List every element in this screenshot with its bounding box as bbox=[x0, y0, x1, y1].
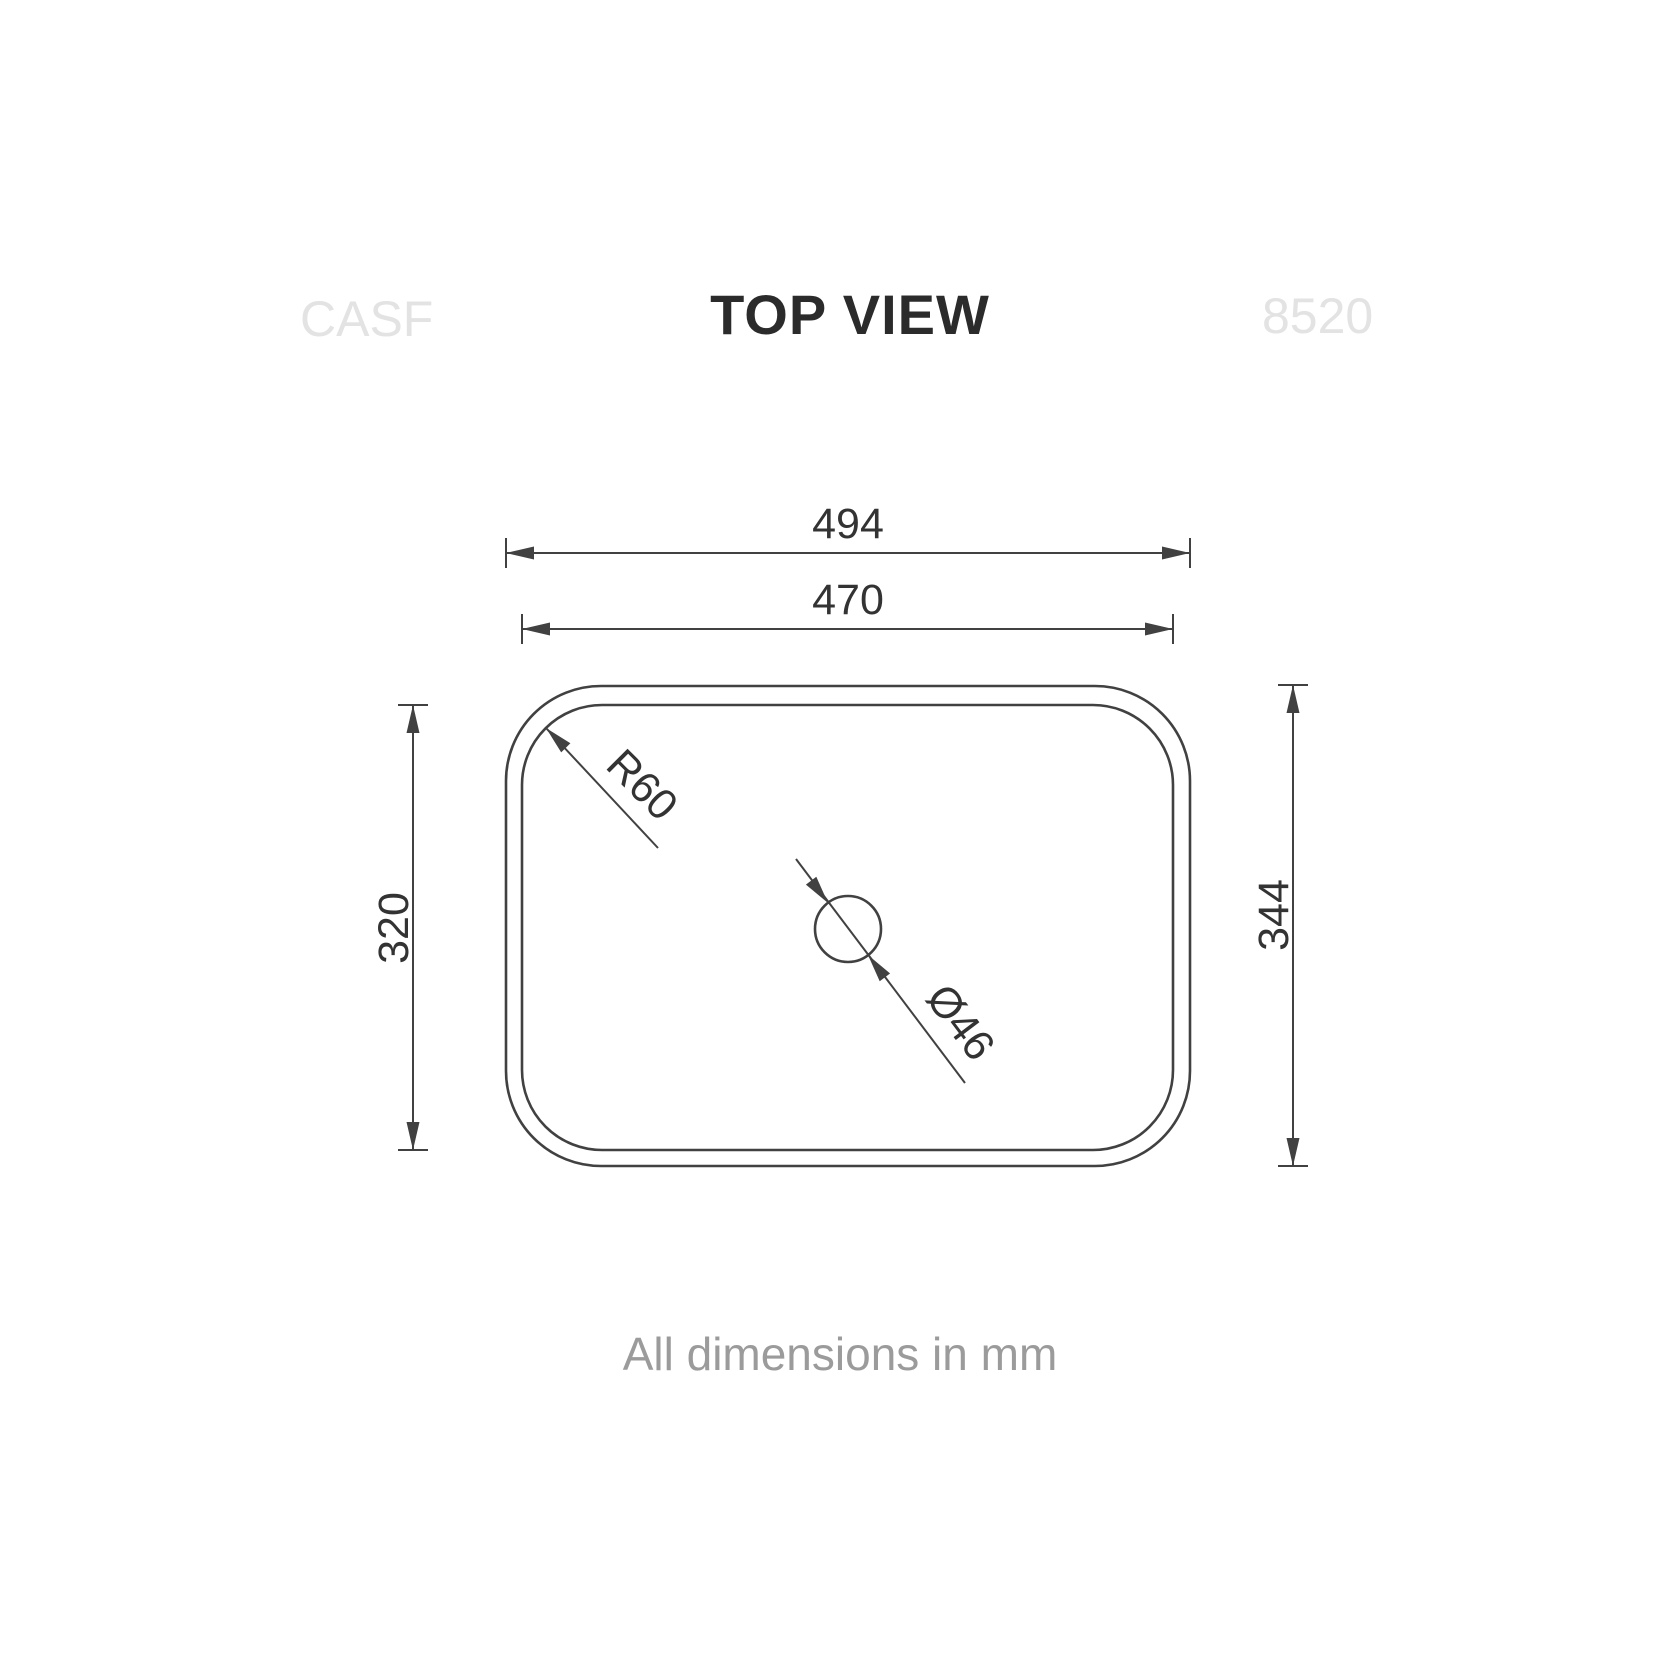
dim-arrow-left bbox=[522, 623, 550, 636]
dim-arrow-bottom bbox=[407, 1122, 420, 1150]
leader-arrow bbox=[546, 728, 570, 752]
top-view-technical-drawing: CASF TOP VIEW 8520 494 470 bbox=[0, 0, 1676, 1676]
leader-arrow-upper bbox=[806, 877, 828, 903]
dim-arrow-top bbox=[1287, 685, 1300, 713]
dim-inner-width: 470 bbox=[522, 576, 1173, 644]
dim-arrow-right bbox=[1162, 547, 1190, 560]
dim-arrow-top bbox=[407, 705, 420, 733]
drain-diameter-label: Ø46 bbox=[917, 976, 1004, 1070]
dim-outer-width: 494 bbox=[506, 500, 1190, 568]
callout-corner-radius: R60 bbox=[546, 728, 687, 848]
dim-inner-height: 320 bbox=[370, 705, 428, 1150]
page-title: TOP VIEW bbox=[710, 283, 990, 346]
dim-arrow-right bbox=[1145, 623, 1173, 636]
leader-arrow-lower bbox=[868, 955, 890, 981]
brand-watermark: CASF bbox=[300, 291, 433, 347]
units-note: All dimensions in mm bbox=[623, 1328, 1058, 1380]
corner-radius-label: R60 bbox=[597, 740, 687, 830]
dim-outer-height: 344 bbox=[1250, 685, 1308, 1166]
model-number-watermark: 8520 bbox=[1262, 288, 1373, 344]
basin-outer-outline bbox=[506, 686, 1190, 1166]
inner-width-label: 470 bbox=[812, 576, 884, 624]
drawing-page: CASF TOP VIEW 8520 494 470 bbox=[0, 0, 1676, 1676]
outer-height-label: 344 bbox=[1250, 879, 1298, 951]
outer-width-label: 494 bbox=[812, 500, 884, 548]
dim-arrow-left bbox=[506, 547, 534, 560]
inner-height-label: 320 bbox=[370, 892, 418, 964]
callout-drain-diameter: Ø46 bbox=[796, 859, 1004, 1083]
dim-arrow-bottom bbox=[1287, 1138, 1300, 1166]
